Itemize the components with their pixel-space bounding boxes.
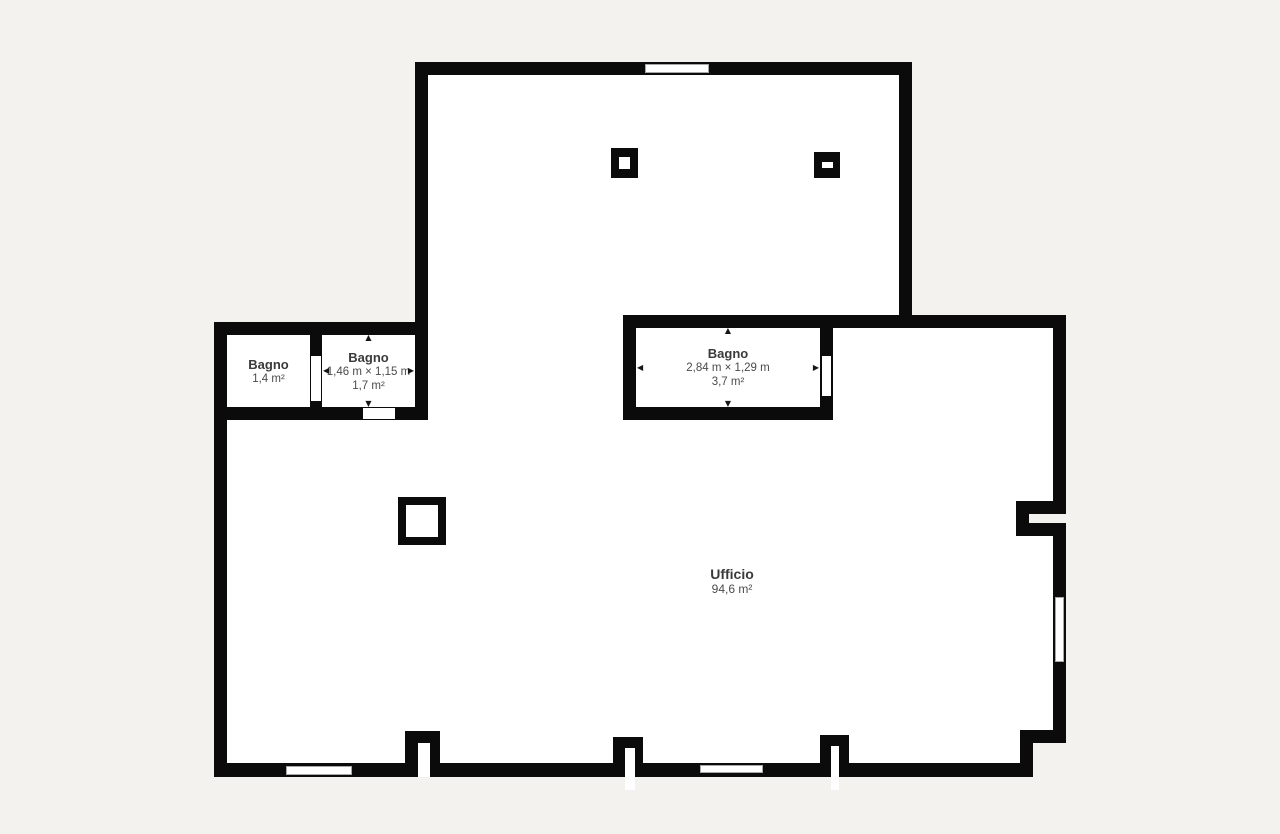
exterior-patch-step-corner xyxy=(1033,743,1067,778)
window-north xyxy=(645,64,709,73)
room-dimensions: 2,84 m × 1,29 m xyxy=(686,361,769,375)
dimension-arrow-down-icon: ▼ xyxy=(725,400,731,408)
dimension-arrow-up-icon: ▲ xyxy=(365,334,371,342)
window-south-left xyxy=(286,766,352,775)
wall-midbath-bottom xyxy=(623,407,833,420)
wall-bath-block-top xyxy=(214,322,415,335)
doorway-bath-medium xyxy=(363,408,395,419)
room-name: Ufficio xyxy=(710,566,754,582)
room-dimensions: 1,46 m × 1,15 m xyxy=(327,365,410,379)
dimension-arrow-left-icon: ◀ xyxy=(637,364,643,372)
column-hole xyxy=(619,157,630,169)
dimension-arrow-right-icon: ▶ xyxy=(813,364,819,372)
column-upper-right xyxy=(814,152,840,178)
doorway-bath-divider xyxy=(311,356,321,401)
doorway-south-left xyxy=(418,743,430,777)
room-label-bagno-small: Bagno 1,4 m² xyxy=(227,335,310,407)
room-area: 1,7 m² xyxy=(352,379,385,393)
wall-upper-room-right xyxy=(899,62,912,328)
room-label-ufficio: Ufficio 94,6 m² xyxy=(652,560,812,602)
room-label-bagno-medium: ▲ ▼ ◀ ▶ Bagno 1,46 m × 1,15 m 1,7 m² xyxy=(322,335,415,407)
upper-room-floor xyxy=(415,62,912,331)
room-area: 3,7 m² xyxy=(712,375,745,389)
dimension-arrow-up-icon: ▲ xyxy=(725,327,731,335)
column-hole xyxy=(406,505,438,537)
room-label-bagno-large: ▲ ▼ ◀ ▶ Bagno 2,84 m × 1,29 m 3,7 m² xyxy=(636,328,820,407)
window-south-middle xyxy=(700,765,763,773)
doorway-south-right xyxy=(831,746,839,790)
wall-long-horizontal xyxy=(623,315,1066,328)
room-name: Bagno xyxy=(708,346,748,361)
dimension-arrow-left-icon: ◀ xyxy=(323,367,329,375)
wall-west xyxy=(214,322,227,777)
column-hole xyxy=(822,162,833,168)
wall-niche-lower xyxy=(1016,523,1066,536)
window-east xyxy=(1055,597,1064,662)
floor-plan: Bagno 1,4 m² ▲ ▼ ◀ ▶ Bagno 1,46 m × 1,15… xyxy=(0,0,1280,834)
dimension-arrow-down-icon: ▼ xyxy=(365,400,371,408)
room-name: Bagno xyxy=(248,357,288,372)
wall-bath-block-bottom xyxy=(214,407,428,420)
room-area: 94,6 m² xyxy=(712,582,753,597)
column-upper-left xyxy=(611,148,638,178)
room-name: Bagno xyxy=(348,350,388,365)
wall-step-vertical xyxy=(1020,730,1033,777)
room-area: 1,4 m² xyxy=(252,372,285,386)
doorway-south-middle xyxy=(625,748,635,790)
wall-upper-room-left xyxy=(415,62,428,420)
doorway-bath-large xyxy=(822,356,831,396)
exterior-patch-above-bath-block xyxy=(214,314,415,322)
niche-opening xyxy=(1029,514,1067,523)
column-office xyxy=(398,497,446,545)
dimension-arrow-right-icon: ▶ xyxy=(408,367,414,375)
